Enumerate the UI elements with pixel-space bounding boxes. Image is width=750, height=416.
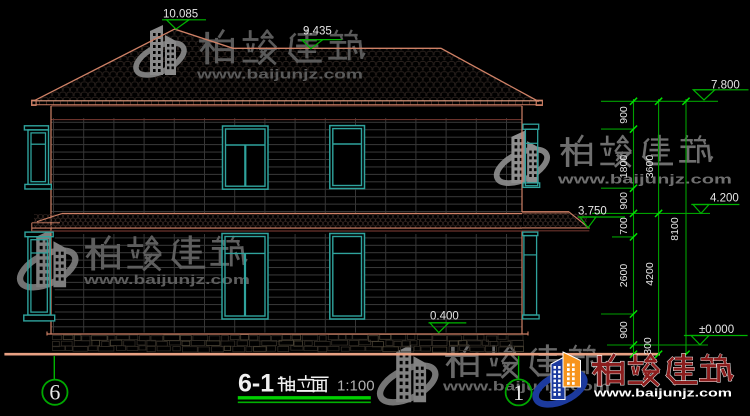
svg-text:1:100: 1:100 bbox=[337, 378, 375, 395]
svg-text:4.200: 4.200 bbox=[710, 192, 739, 204]
svg-text:1800: 1800 bbox=[618, 155, 630, 179]
svg-text:10.085: 10.085 bbox=[163, 9, 198, 21]
svg-text:1: 1 bbox=[513, 380, 524, 405]
svg-text:900: 900 bbox=[618, 321, 630, 339]
svg-text:3.750: 3.750 bbox=[578, 205, 607, 217]
svg-text:0.400: 0.400 bbox=[430, 310, 459, 322]
svg-text:6-1: 6-1 bbox=[238, 370, 274, 398]
svg-text:300: 300 bbox=[642, 337, 654, 355]
svg-text:900: 900 bbox=[618, 106, 630, 124]
svg-text:2600: 2600 bbox=[618, 264, 630, 288]
svg-text:9.435: 9.435 bbox=[303, 26, 332, 38]
svg-text:www.baijunjz.com: www.baijunjz.com bbox=[593, 388, 733, 400]
svg-text:3600: 3600 bbox=[644, 155, 656, 179]
svg-text:900: 900 bbox=[618, 192, 630, 210]
svg-text:www.baijunjz.com: www.baijunjz.com bbox=[196, 67, 363, 82]
svg-text:700: 700 bbox=[618, 217, 630, 235]
svg-text:4200: 4200 bbox=[644, 262, 656, 286]
svg-text:6: 6 bbox=[49, 380, 60, 405]
svg-text:±0.000: ±0.000 bbox=[699, 324, 734, 336]
svg-text:8100: 8100 bbox=[669, 217, 681, 241]
